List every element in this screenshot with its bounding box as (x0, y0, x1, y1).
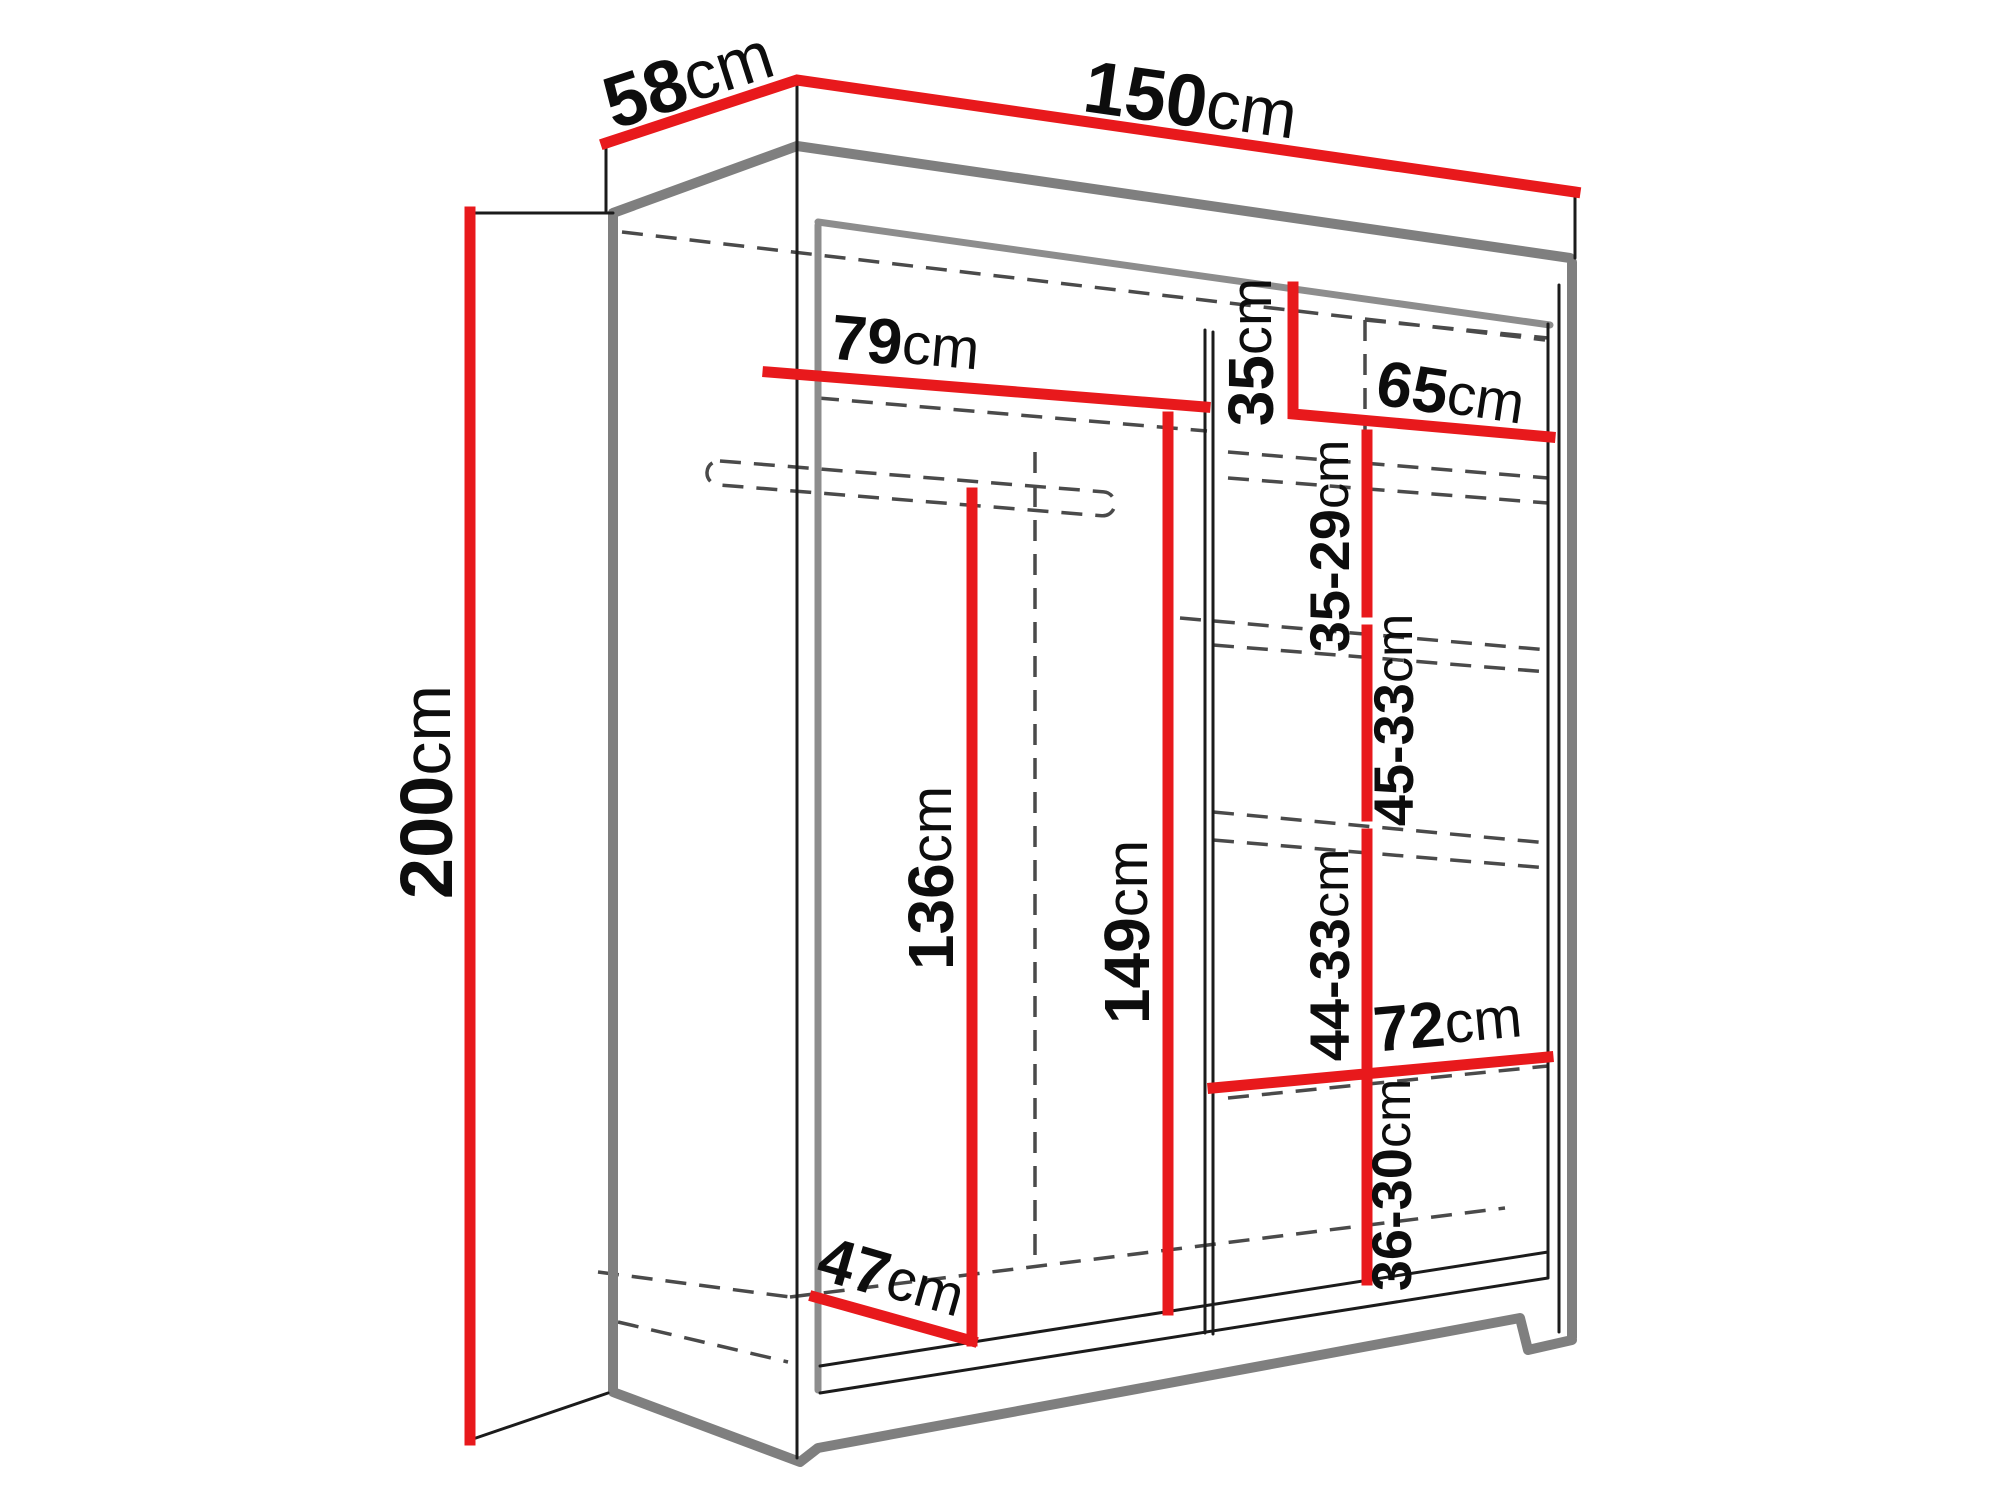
dim-width-label: 150cm (1079, 44, 1303, 156)
dim-depth-label: 58cm (593, 12, 783, 144)
dim-left-height-label: 136cm (895, 786, 967, 970)
dim-lower-shelf-width-label: 72cm (1370, 980, 1525, 1065)
dim-right-gap1-label: 35-29cm (1298, 440, 1361, 653)
dim-center-height-label: 149cm (1091, 840, 1163, 1024)
dim-height-label: 200cm (385, 685, 468, 899)
dim-top-shelf-label: 35cm (1215, 278, 1287, 427)
dim-right-gap4-label: 36-30cm (1360, 1079, 1423, 1292)
hanging-rail (706, 460, 1116, 517)
dim-right-gap3-label: 44-33cm (1298, 849, 1361, 1062)
dim-left-section-width-label: 79cm (828, 301, 982, 386)
dimension-labels: 58cm 150cm 200cm 79cm 35cm 65cm 35-29cm … (385, 12, 1530, 1332)
dim-right-gap2-label: 45-33cm (1362, 614, 1425, 827)
wardrobe-shading (613, 146, 1572, 1462)
wardrobe-dimension-diagram: 58cm 150cm 200cm 79cm 35cm 65cm 35-29cm … (0, 0, 2000, 1500)
diagram-canvas: 58cm 150cm 200cm 79cm 35cm 65cm 35-29cm … (0, 0, 2000, 1500)
